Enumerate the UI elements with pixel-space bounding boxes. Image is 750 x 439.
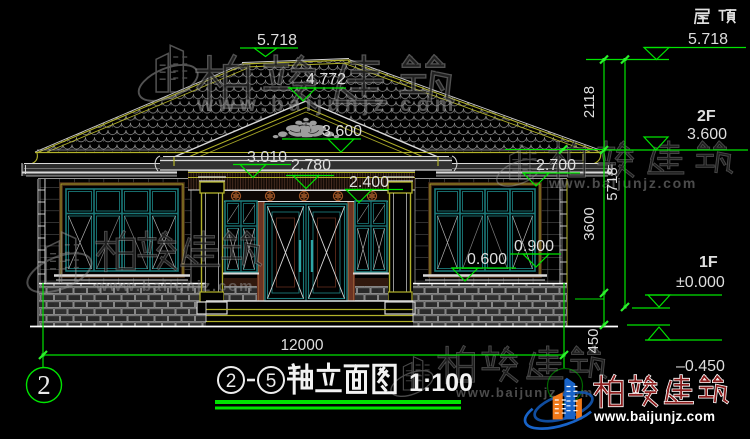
svg-text:3.010: 3.010 — [247, 149, 287, 166]
svg-text:2: 2 — [37, 370, 51, 400]
svg-text:www.baijunjz.com: www.baijunjz.com — [95, 278, 254, 295]
svg-text:5: 5 — [266, 371, 277, 392]
svg-text:0.600: 0.600 — [467, 251, 507, 268]
svg-text:3.600: 3.600 — [322, 123, 362, 140]
svg-text:±0.000: ±0.000 — [676, 274, 725, 291]
svg-text:www.baijunjz.com: www.baijunjz.com — [196, 93, 458, 116]
svg-text:450: 450 — [585, 328, 602, 353]
svg-text:5718: 5718 — [604, 167, 621, 200]
svg-text:2: 2 — [226, 371, 237, 392]
svg-text:2F: 2F — [697, 108, 716, 125]
svg-text:5.718: 5.718 — [257, 32, 297, 49]
svg-text:2.780: 2.780 — [291, 157, 331, 174]
svg-text:2.700: 2.700 — [536, 157, 576, 174]
svg-text:1:100: 1:100 — [409, 369, 473, 397]
svg-text:3600: 3600 — [581, 207, 598, 240]
svg-text:4.772: 4.772 — [306, 71, 346, 88]
svg-text:1F: 1F — [699, 254, 718, 271]
svg-text:2118: 2118 — [581, 86, 598, 118]
svg-text:5.718: 5.718 — [688, 31, 728, 48]
svg-text:www.baijunjz.com: www.baijunjz.com — [593, 409, 715, 424]
svg-text:12000: 12000 — [280, 337, 323, 354]
svg-text:www.baijunjz.com: www.baijunjz.com — [548, 175, 697, 191]
svg-text:2.400: 2.400 — [349, 174, 389, 191]
svg-text:3.600: 3.600 — [687, 126, 727, 143]
svg-text:0.900: 0.900 — [514, 238, 554, 255]
svg-text:–0.450: –0.450 — [676, 358, 725, 375]
